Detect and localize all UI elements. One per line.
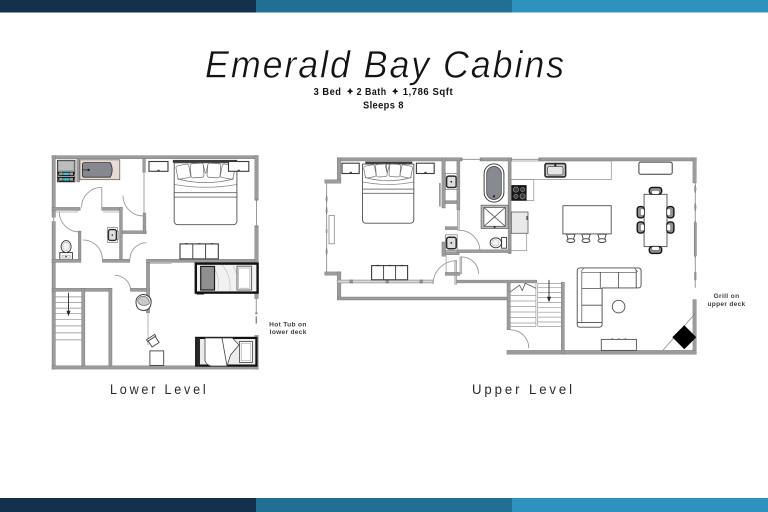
svg-text:Lower Level: Lower Level (110, 382, 209, 397)
svg-text:Emerald Bay Cabins: Emerald Bay Cabins (205, 45, 566, 87)
svg-text:Grill on: Grill on (714, 293, 740, 300)
svg-text:Upper Level: Upper Level (472, 382, 575, 397)
svg-text:Sleeps 8: Sleeps 8 (363, 100, 404, 111)
svg-text:3 Bed: 3 Bed (314, 87, 342, 98)
svg-text:lower deck: lower deck (270, 329, 307, 336)
svg-text:1,786 Sqft: 1,786 Sqft (403, 87, 454, 98)
svg-text:2 Bath: 2 Bath (357, 87, 387, 98)
svg-text:Hot Tub on: Hot Tub on (269, 321, 307, 328)
svg-text:upper deck: upper deck (708, 301, 746, 308)
